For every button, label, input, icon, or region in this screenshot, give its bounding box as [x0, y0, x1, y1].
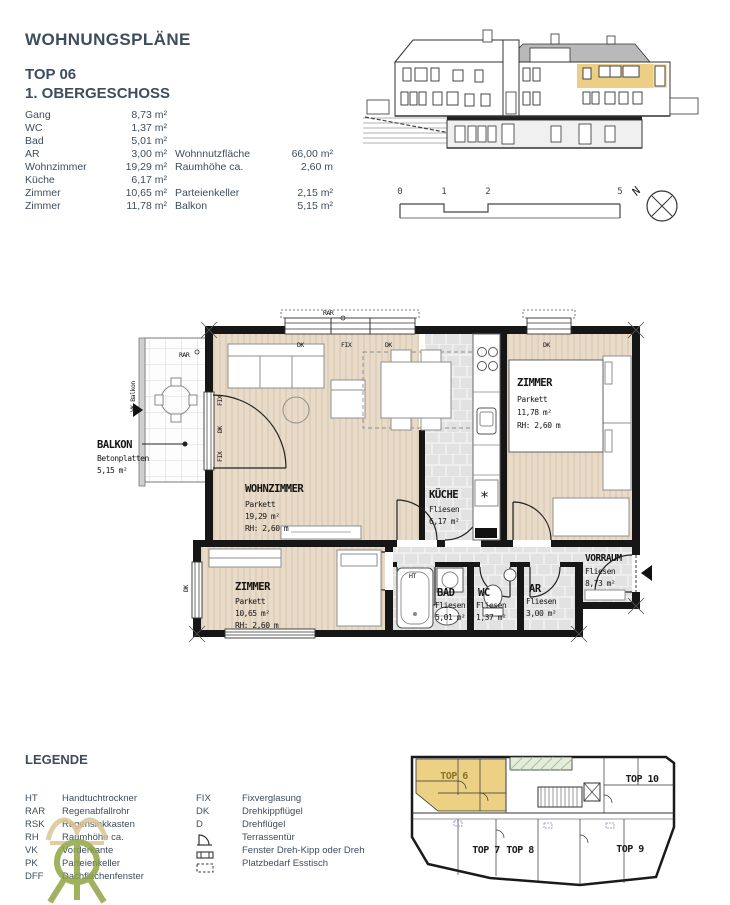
room-row: Zimmer11,78 m²	[25, 200, 167, 212]
chair	[421, 350, 441, 362]
scale-tick: 5	[617, 187, 622, 197]
zimmer1-area: 11,78 m²	[517, 408, 552, 417]
summary-label: Raumhöhe ca.	[175, 161, 243, 173]
site-top6-label: TOP 6	[440, 771, 468, 782]
site-plan: TOP 6 TOP 7 TOP 8 TOP 9 TOP 10	[398, 735, 718, 905]
balkon-floor-type: Betonplatten	[97, 454, 149, 463]
window-dk-label: DK	[385, 341, 392, 349]
ht-label: HT	[409, 572, 416, 580]
chair	[391, 418, 411, 430]
elevation-building	[367, 30, 698, 116]
zimmer1-label-box	[509, 360, 603, 452]
room-area: 1,37 m²	[131, 122, 167, 134]
wohnzimmer-rh: RH: 2,60 m	[245, 524, 289, 533]
balcony-floor	[145, 338, 207, 482]
crown-icon	[48, 820, 106, 840]
window-zimmer2-bottom	[225, 629, 315, 638]
ar-floor	[524, 562, 575, 630]
sideboard	[281, 526, 361, 539]
chair	[155, 395, 163, 405]
legend-label: Fixverglasung	[242, 793, 301, 804]
room-area: 3,00 m²	[131, 148, 167, 160]
room-label: Zimmer	[25, 187, 61, 199]
balkon-area: 5,15 m²	[97, 466, 127, 475]
chair	[171, 414, 181, 422]
room-area: 8,73 m²	[131, 109, 167, 121]
legend-label: Fenster Dreh-Kipp oder Dreh	[242, 845, 365, 856]
elevation-terrain	[363, 117, 455, 143]
shoe-cabinet	[585, 590, 625, 600]
ar-floor-type: Fliesen	[526, 597, 557, 606]
legend-label: Handtuchtrockner	[62, 793, 137, 804]
legend-abbr: D	[196, 819, 203, 830]
balcony-door-window	[204, 392, 214, 470]
monogram-icon	[50, 840, 104, 902]
ar-area: 3,00 m²	[526, 609, 556, 618]
north-compass-icon: N	[629, 184, 677, 221]
wc-floor-type: Fliesen	[476, 601, 507, 610]
balkon-name: BALKON	[97, 439, 132, 451]
chair	[189, 395, 197, 405]
balkon-leader-dot	[183, 442, 188, 447]
kueche-floor-type: Fliesen	[429, 505, 460, 514]
site-top7-label: TOP 7	[472, 845, 500, 856]
legend-label: Terrassentür	[242, 832, 295, 843]
room-label: WC	[25, 122, 43, 134]
building-elevation-drawing	[355, 20, 725, 180]
dining-table	[381, 362, 451, 418]
summary-label: Wohnnutzfläche	[175, 148, 250, 160]
scale-tick: 1	[441, 187, 446, 197]
window-fix-label: FIX	[341, 341, 352, 349]
window-dk-label: DK	[543, 341, 550, 349]
legend-abbr: FIX	[196, 793, 211, 804]
room-label: Wohnzimmer	[25, 161, 87, 173]
summary-row: Wohnnutzfläche66,00 m²	[175, 148, 333, 160]
north-label: N	[629, 184, 644, 198]
sofa	[228, 344, 324, 388]
window-dk-label: DK	[216, 426, 224, 433]
rar-label: RAR	[323, 309, 334, 317]
scale-tick: 2	[485, 187, 490, 197]
scale-bar	[400, 204, 620, 218]
kueche-area: 6,17 m²	[429, 517, 459, 526]
site-top10-label: TOP 10	[625, 774, 659, 785]
elevation-basement	[447, 116, 642, 148]
bad-name: BAD	[437, 587, 455, 599]
zimmer2-name: ZIMMER	[235, 581, 271, 593]
summary-row: Balkon5,15 m²	[175, 200, 333, 212]
watermark-logo	[20, 806, 140, 905]
chair	[171, 378, 181, 386]
rar-label: RAR	[179, 351, 190, 359]
summary-row: Raumhöhe ca.2,60 m	[175, 161, 333, 173]
vorraum-floor-type: Fliesen	[585, 567, 616, 576]
ar-name: AR	[529, 583, 542, 595]
floor-plan: *	[85, 300, 655, 652]
window-fix-label: FIX	[216, 395, 224, 406]
room-label: Küche	[25, 174, 55, 186]
wohnzimmer-area: 19,29 m²	[245, 512, 280, 521]
small-sink-icon	[504, 569, 516, 581]
legend-label: Drehkippflügel	[242, 806, 303, 817]
room-row: Gang8,73 m²	[25, 109, 167, 121]
bench	[553, 498, 629, 536]
legend-abbr: HT	[25, 793, 38, 804]
room-label: Bad	[25, 135, 44, 147]
site-top9-label: TOP 9	[616, 844, 644, 855]
window-dk-label: DK	[297, 341, 304, 349]
armchair	[331, 380, 365, 418]
page-title: WOHNUNGSPLÄNE	[25, 30, 191, 50]
room-row: Küche6,17 m²	[25, 174, 167, 186]
chair	[421, 418, 441, 430]
bad-floor-type: Fliesen	[435, 601, 466, 610]
zimmer1-name: ZIMMER	[517, 377, 553, 389]
zimmer2-area: 10,65 m²	[235, 609, 270, 618]
vorraum-area: 8,73 m²	[585, 579, 615, 588]
legend-abbr: DK	[196, 806, 209, 817]
svg-text:*: *	[480, 488, 489, 506]
room-row: WC1,37 m²	[25, 122, 167, 134]
pillow	[341, 554, 377, 566]
room-row: Zimmer10,65 m²	[25, 187, 167, 199]
legend-title: LEGENDE	[25, 752, 88, 767]
vk-balkon-label: VK Balkon	[129, 381, 137, 412]
room-area: 5,01 m²	[131, 135, 167, 147]
wc-area: 1,37 m²	[476, 613, 506, 622]
zimmer2-floor-type: Parkett	[235, 597, 266, 606]
summary-row: Parteienkeller2,15 m²	[175, 187, 333, 199]
platzbedarf-esstisch-icon	[196, 860, 214, 878]
legend-label: Drehflügel	[242, 819, 285, 830]
summary-label: Parteienkeller	[175, 187, 239, 199]
summary-value: 66,00 m²	[292, 148, 333, 160]
legend-label: Platzbedarf Esstisch	[242, 858, 328, 869]
room-label: Gang	[25, 109, 51, 121]
window-top-1	[285, 318, 415, 334]
zimmer1-rh: RH: 2,60 m	[517, 421, 561, 430]
kitchen-counter: *	[473, 334, 500, 540]
window-zimmer2-left	[192, 562, 202, 618]
room-area: 10,65 m²	[126, 187, 167, 199]
room-area: 6,17 m²	[131, 174, 167, 186]
summary-value: 2,60 m	[301, 161, 333, 173]
wohnzimmer-name: WOHNZIMMER	[245, 483, 304, 495]
window-fix-label: FIX	[216, 451, 224, 462]
bad-area: 5,01 m²	[435, 613, 465, 622]
room-area: 19,29 m²	[126, 161, 167, 173]
unit-title: TOP 06	[25, 66, 76, 83]
wohnzimmer-floor-type: Parkett	[245, 500, 276, 509]
summary-value: 2,15 m²	[297, 187, 333, 199]
summary-label: Balkon	[175, 200, 207, 212]
zimmer1-floor-type: Parkett	[517, 395, 548, 404]
room-area: 11,78 m²	[126, 200, 167, 212]
floor-title: 1. OBERGESCHOSS	[25, 85, 170, 102]
top6-unit-highlight	[416, 759, 506, 811]
room-row: Wohnzimmer19,29 m²	[25, 161, 167, 173]
scale-and-compass: 0 1 2 5 N	[390, 178, 690, 226]
room-row: AR3,00 m²	[25, 148, 167, 160]
vorraum-name: VORRAUM	[585, 553, 622, 564]
kueche-name: KÜCHE	[429, 487, 458, 501]
summary-value: 5,15 m²	[297, 200, 333, 212]
entrance-arrow-icon	[641, 565, 652, 581]
plan-sheet: WOHNUNGSPLÄNE TOP 06 1. OBERGESCHOSS Gan…	[0, 0, 730, 905]
zimmer2-rh: RH: 2,60 m	[235, 621, 279, 630]
room-row: Bad5,01 m²	[25, 135, 167, 147]
window-top-2	[527, 318, 571, 334]
room-label: AR	[25, 148, 40, 160]
room-label: Zimmer	[25, 200, 61, 212]
site-top8-label: TOP 8	[506, 845, 534, 856]
wc-name: WC	[478, 587, 490, 599]
window-dk-label: DK	[182, 585, 190, 592]
chair	[391, 350, 411, 362]
scale-tick: 0	[397, 187, 402, 197]
